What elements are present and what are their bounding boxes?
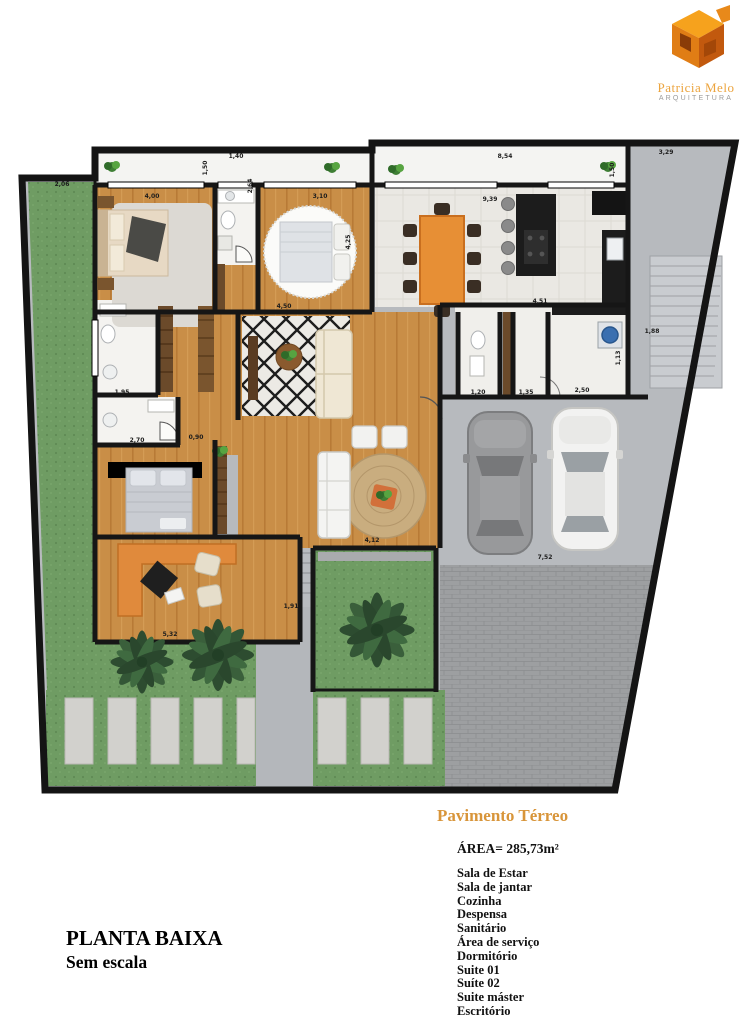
dim-label: 1,50 <box>609 163 616 178</box>
dim-label: 4,51 <box>533 298 548 305</box>
sofa-white <box>318 452 350 538</box>
palm-tree-icon <box>111 631 174 694</box>
legend-area: ÁREA= 285,73m² <box>457 841 559 857</box>
dim-label: 4,00 <box>145 193 160 200</box>
terrace-floor <box>372 143 628 185</box>
legend-room-list: Sala de Estar Sala de jantar Cozinha Des… <box>457 867 539 1019</box>
drawing-title: PLANTA BAIXA <box>66 926 223 950</box>
legend-room-item: Suíte 02 <box>457 977 539 991</box>
dim-label: 1,88 <box>645 328 660 335</box>
dim-label: 1,13 <box>615 351 622 366</box>
dim-label: 2,64 <box>247 179 254 194</box>
legend-room-item: Suite máster <box>457 991 539 1005</box>
dim-label: 2,06 <box>55 181 70 188</box>
legend-room-item: Despensa <box>457 908 539 922</box>
palm-tree-icon <box>182 619 254 691</box>
palm-tree-icon <box>340 593 415 668</box>
legend-room-item: Suite 01 <box>457 964 539 978</box>
service-rooms-floor <box>455 307 628 397</box>
car-white <box>547 408 623 550</box>
dim-label: 7,52 <box>538 554 553 561</box>
logo-subtitle: ARQUITETURA <box>646 95 744 102</box>
legend-room-item: Área de serviço <box>457 936 539 950</box>
dim-label: 4,25 <box>345 235 352 250</box>
dim-label: 2,70 <box>130 437 145 444</box>
dim-label: 0,90 <box>189 434 204 441</box>
legend-room-item: Sala de Estar <box>457 867 539 881</box>
stepping-stones <box>65 698 432 764</box>
suite-round-bed <box>264 206 356 298</box>
legend-room-item: Sala de jantar <box>457 881 539 895</box>
legend-room-item: Escritório <box>457 1005 539 1019</box>
dim-label: 1,40 <box>229 153 244 160</box>
logo-name: Patricia Melo <box>646 80 744 96</box>
dim-label: 4,12 <box>365 537 380 544</box>
dim-label: 1,50 <box>202 161 209 176</box>
car-gray <box>463 412 537 554</box>
dim-label: 1,35 <box>519 389 534 396</box>
dim-label: 4,50 <box>277 303 292 310</box>
legend-heading: Pavimento Térreo <box>437 806 568 826</box>
dim-label: 3,29 <box>659 149 674 156</box>
dim-label: 1,91 <box>284 603 299 610</box>
dim-label: 9,39 <box>483 196 498 203</box>
logo-cube-icon <box>672 5 730 68</box>
dim-label: 2,50 <box>575 387 590 394</box>
drawing-subtitle: Sem escala <box>66 952 147 973</box>
dim-label: 1,20 <box>471 389 486 396</box>
dim-label: 1,95 <box>115 389 130 396</box>
page: { "logo": { "name": "Patricia Melo", "su… <box>0 0 744 1024</box>
tv-room <box>242 316 352 418</box>
floor-plan: 2,06 4,00 1,50 1,40 2,64 3,10 8,54 9,39 … <box>0 0 744 1024</box>
legend-room-item: Sanitário <box>457 922 539 936</box>
dim-label: 8,54 <box>498 153 513 160</box>
dim-label: 5,32 <box>163 631 178 638</box>
dim-label: 3,10 <box>313 193 328 200</box>
legend-room-item: Cozinha <box>457 895 539 909</box>
legend-room-item: Dormitório <box>457 950 539 964</box>
dining-table <box>420 216 464 304</box>
